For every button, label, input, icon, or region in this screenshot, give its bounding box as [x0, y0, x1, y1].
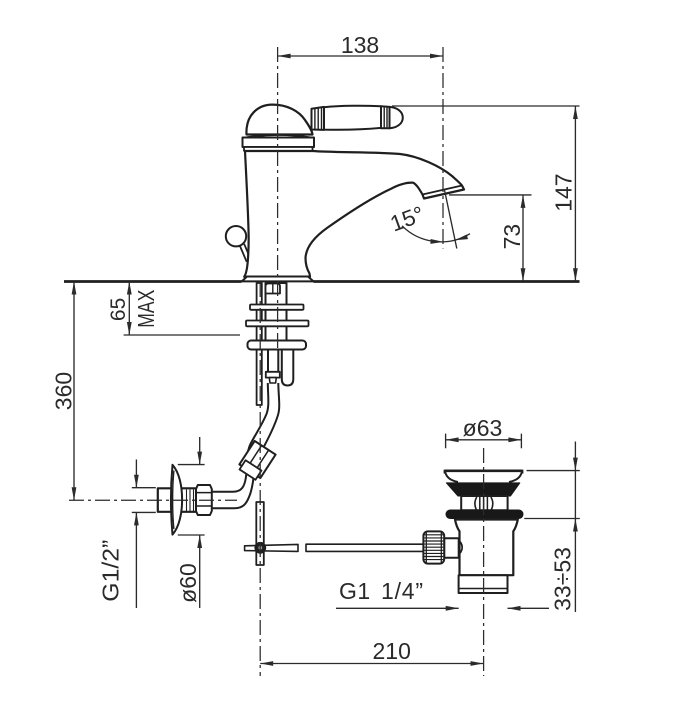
svg-text:360: 360 [51, 372, 77, 410]
svg-text:ø60: ø60 [175, 563, 201, 603]
svg-text:33÷53: 33÷53 [550, 547, 576, 611]
svg-text:15°: 15° [387, 201, 428, 236]
svg-text:MAX: MAX [133, 290, 159, 328]
svg-text:210: 210 [373, 638, 411, 664]
svg-text:1/4”: 1/4” [381, 578, 424, 604]
svg-text:138: 138 [341, 32, 379, 58]
svg-text:G1: G1 [339, 578, 371, 604]
svg-text:147: 147 [551, 173, 577, 211]
svg-text:65: 65 [107, 298, 130, 321]
svg-text:73: 73 [499, 224, 525, 250]
svg-text:ø63: ø63 [463, 415, 503, 441]
svg-text:G1/2”: G1/2” [98, 540, 124, 602]
